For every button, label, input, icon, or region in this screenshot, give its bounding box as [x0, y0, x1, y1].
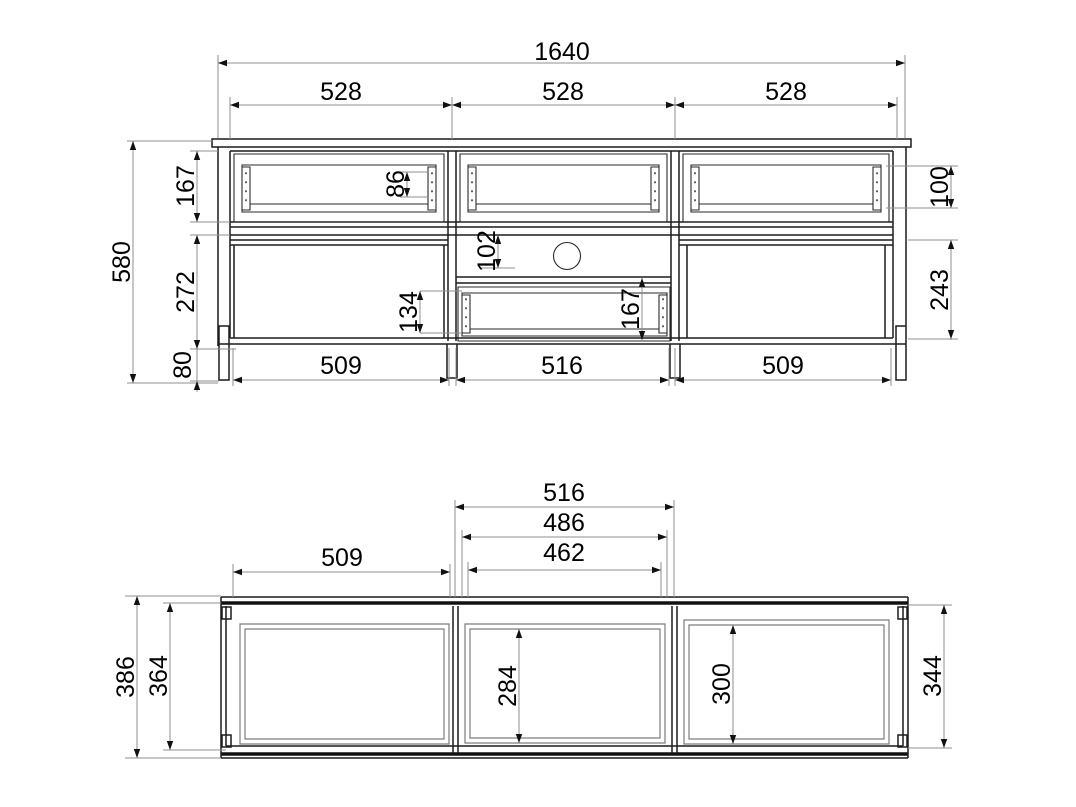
- dim-plan-right-inner-depth: 344: [919, 655, 947, 697]
- dim-front-top-section-height: 167: [172, 165, 200, 207]
- dim-plan-left-width: 509: [321, 544, 363, 572]
- front-carcass-lines: [212, 139, 911, 380]
- screw-dots: [246, 173, 877, 330]
- dim-front-bottom-width-middle: 516: [541, 352, 583, 380]
- dim-front-section-width-right: 528: [765, 78, 807, 106]
- dim-front-leg-height: 80: [169, 351, 197, 379]
- cable-hole: [554, 243, 581, 270]
- dim-front-drawer-rail-height: 86: [382, 170, 410, 198]
- plan-door-outlines: [240, 620, 889, 744]
- dim-front-section-width-left: 528: [320, 78, 362, 106]
- dim-plan-middle-mid-width: 486: [543, 509, 585, 537]
- dim-plan-middle-inner-width: 462: [543, 539, 585, 567]
- dim-plan-middle-outer-width: 516: [543, 479, 585, 507]
- front-view: [212, 139, 911, 380]
- plan-thick-edges: [221, 603, 908, 754]
- dimension-lines: [125, 55, 958, 758]
- dim-front-bottom-width-left: 509: [320, 352, 362, 380]
- dim-front-right-opening-height: 100: [926, 166, 954, 208]
- dim-front-right-lower-height: 243: [926, 269, 954, 311]
- front-drawer-lines: [234, 154, 889, 341]
- dim-front-total-height: 580: [108, 241, 136, 283]
- dim-front-drawer-front-height: 134: [395, 291, 423, 333]
- dim-plan-inner-depth: 364: [145, 655, 173, 697]
- dim-front-bottom-width-right: 509: [762, 352, 804, 380]
- dim-front-section-width-middle: 528: [542, 78, 584, 106]
- dim-front-lower-drawer-height: 167: [617, 288, 645, 330]
- dim-front-cable-gap-height: 102: [473, 230, 501, 272]
- dim-front-total-width: 1640: [534, 38, 590, 66]
- technical-drawing-page: 1640 528 528 528 580 167 272 80 86 100 1…: [0, 0, 1076, 807]
- dim-plan-right-door-depth: 300: [708, 663, 736, 705]
- dim-plan-middle-door-depth: 284: [494, 665, 522, 707]
- dim-front-middle-section-height: 272: [172, 271, 200, 313]
- plan-carcass-lines: [221, 597, 908, 758]
- furniture-dimension-drawing: 1640 528 528 528 580 167 272 80 86 100 1…: [0, 0, 1076, 807]
- plan-view: [221, 597, 908, 758]
- dim-plan-total-depth: 386: [112, 656, 140, 698]
